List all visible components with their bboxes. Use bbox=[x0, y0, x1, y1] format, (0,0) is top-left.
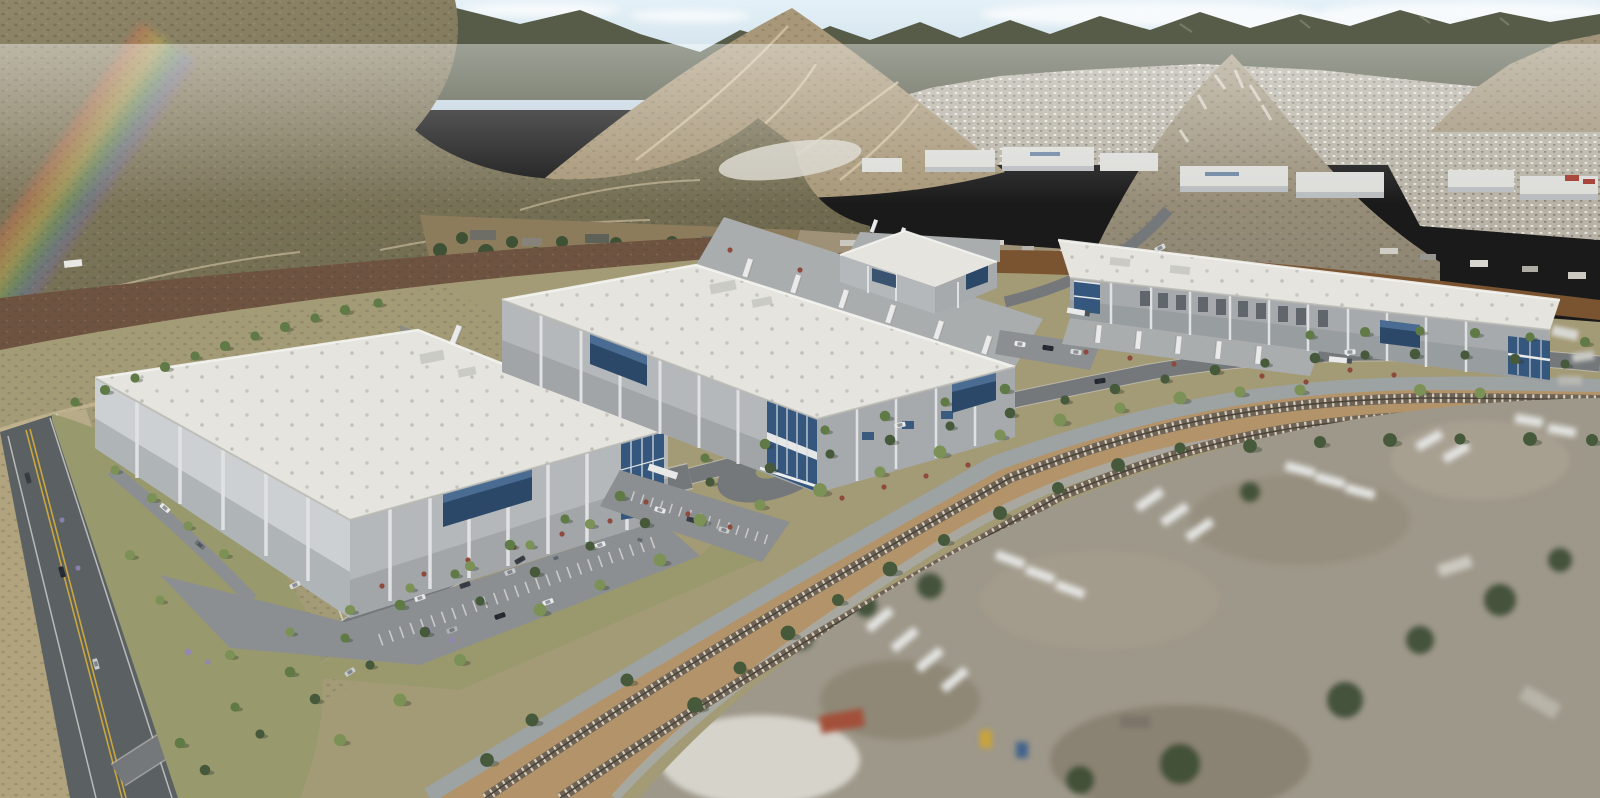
warehouse-d-entry-west bbox=[1074, 281, 1100, 314]
aerial-render bbox=[0, 0, 1600, 798]
